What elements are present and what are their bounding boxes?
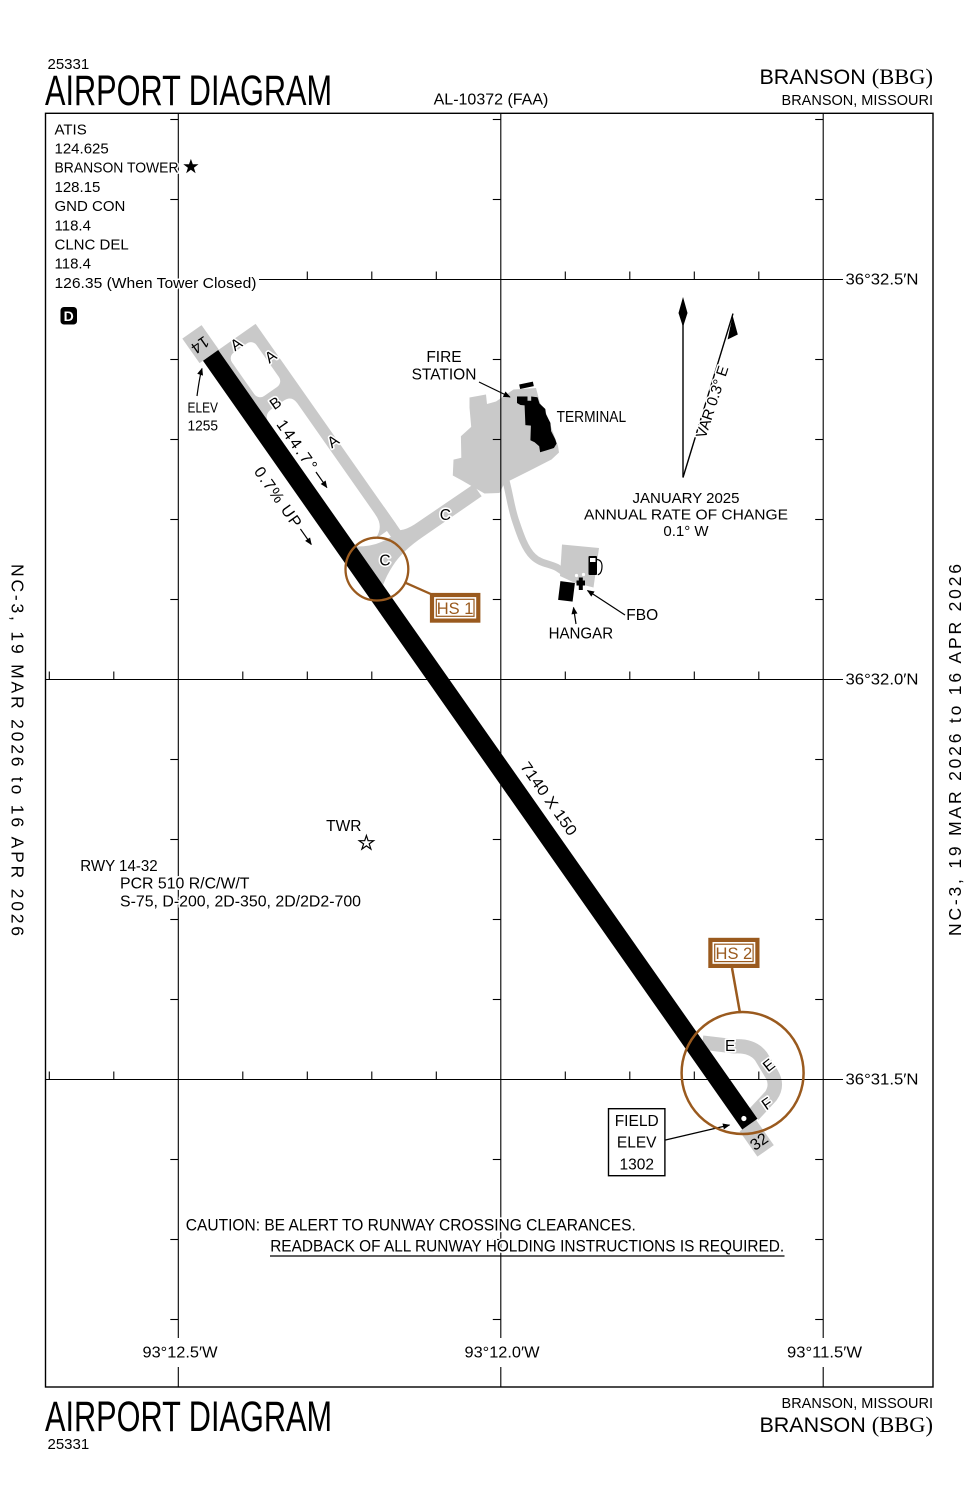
svg-text:AL-10372 (FAA): AL-10372 (FAA)	[434, 92, 549, 109]
svg-text:PCR 510 R/C/W/T: PCR 510 R/C/W/T	[120, 876, 250, 893]
svg-text:RWY 14-32: RWY 14-32	[80, 858, 158, 875]
svg-text:93°11.5′W: 93°11.5′W	[787, 1345, 862, 1362]
svg-text:STATION: STATION	[412, 367, 477, 384]
svg-text:126.35 (When Tower Closed): 126.35 (When Tower Closed)	[55, 275, 257, 292]
svg-text:BRANSON, MISSOURI: BRANSON, MISSOURI	[782, 1396, 933, 1412]
svg-text:118.4: 118.4	[55, 256, 91, 273]
svg-text:93°12.5′W: 93°12.5′W	[143, 1345, 218, 1362]
svg-text:TERMINAL: TERMINAL	[557, 409, 627, 426]
svg-text:1255: 1255	[188, 418, 219, 435]
svg-text:ELEV: ELEV	[617, 1135, 657, 1152]
svg-text:36°32.0′N: 36°32.0′N	[846, 672, 919, 689]
svg-text:FIRE: FIRE	[426, 349, 461, 366]
svg-text:FIELD: FIELD	[615, 1113, 659, 1130]
svg-text:36°32.5′N: 36°32.5′N	[846, 272, 919, 289]
svg-text:36°31.5′N: 36°31.5′N	[846, 1072, 919, 1089]
svg-text:S-75, D-200, 2D-350, 2D/2D2-70: S-75, D-200, 2D-350, 2D/2D2-700	[120, 894, 361, 911]
svg-text:TWR: TWR	[326, 818, 361, 835]
svg-text:CAUTION: BE ALERT TO RUNWAY CR: CAUTION: BE ALERT TO RUNWAY CROSSING CLE…	[186, 1217, 636, 1235]
svg-text:AIRPORT DIAGRAM: AIRPORT DIAGRAM	[45, 1393, 332, 1441]
svg-text:0.1° W: 0.1° W	[663, 523, 709, 540]
svg-text:D: D	[64, 308, 74, 324]
svg-text:BRANSON (BBG): BRANSON (BBG)	[759, 64, 933, 89]
svg-text:118.4: 118.4	[55, 217, 91, 234]
svg-text:C: C	[379, 553, 390, 570]
svg-text:BRANSON TOWER: BRANSON TOWER	[55, 160, 179, 177]
svg-text:ATIS: ATIS	[55, 121, 87, 138]
svg-text:BRANSON (BBG): BRANSON (BBG)	[759, 1412, 933, 1437]
svg-text:93°12.0′W: 93°12.0′W	[465, 1345, 540, 1362]
svg-text:124.625: 124.625	[55, 141, 109, 158]
svg-text:BRANSON, MISSOURI: BRANSON, MISSOURI	[782, 93, 933, 109]
svg-text:ANNUAL RATE OF CHANGE: ANNUAL RATE OF CHANGE	[584, 507, 788, 524]
svg-text:128.15: 128.15	[55, 179, 101, 196]
svg-text:HS 2: HS 2	[716, 945, 753, 963]
svg-text:ELEV: ELEV	[188, 400, 219, 417]
svg-text:1302: 1302	[619, 1157, 653, 1174]
svg-text:READBACK OF ALL RUNWAY HOLDING: READBACK OF ALL RUNWAY HOLDING INSTRUCTI…	[270, 1238, 784, 1256]
svg-text:25331: 25331	[48, 1436, 90, 1453]
svg-text:FBO: FBO	[626, 607, 658, 624]
svg-text:GND CON: GND CON	[55, 198, 126, 215]
svg-text:JANUARY 2025: JANUARY 2025	[632, 490, 739, 507]
svg-text:HANGAR: HANGAR	[549, 626, 614, 643]
svg-text:AIRPORT DIAGRAM: AIRPORT DIAGRAM	[45, 67, 332, 115]
svg-text:NC-3, 19 MAR 2026 to 16 APR: NC-3, 19 MAR 2026 to 16 APR 2026	[945, 564, 965, 936]
svg-text:HS 1: HS 1	[437, 600, 474, 618]
svg-text:NC-3, 19 MAR 2026 to 16 APR: NC-3, 19 MAR 2026 to 16 APR 2026	[8, 564, 28, 936]
svg-text:E: E	[725, 1038, 735, 1055]
svg-text:CLNC DEL: CLNC DEL	[55, 237, 129, 254]
svg-text:C: C	[440, 507, 451, 524]
